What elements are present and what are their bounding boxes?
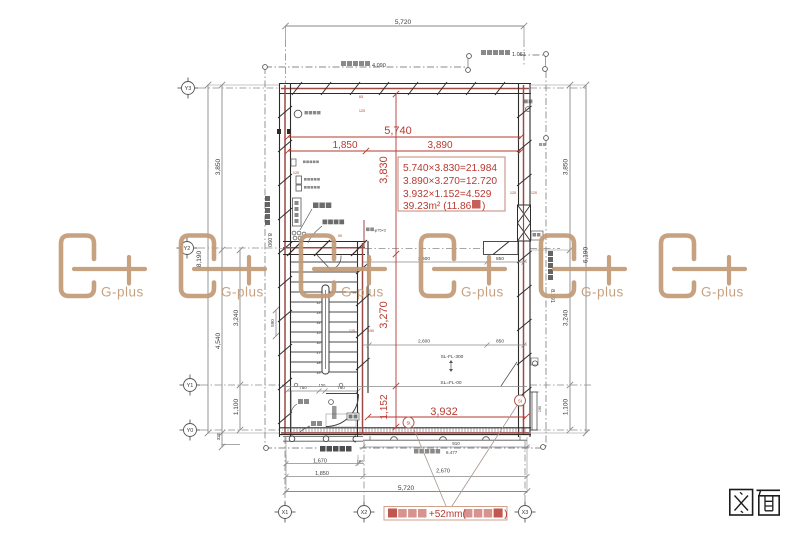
svg-text:19: 19 [316, 371, 320, 375]
svg-text:1,152: 1,152 [379, 394, 390, 419]
svg-text:8.090: 8.090 [266, 233, 272, 247]
svg-text:190: 190 [538, 406, 542, 412]
svg-text:14: 14 [316, 321, 320, 325]
svg-text:Y0: Y0 [187, 428, 194, 434]
svg-text:SL-FL-300: SL-FL-300 [441, 354, 464, 360]
svg-text:320: 320 [216, 432, 221, 440]
svg-text:+52mm(: +52mm( [429, 509, 467, 520]
svg-text:3,830: 3,830 [378, 156, 390, 184]
svg-text:SL=FL-00: SL=FL-00 [440, 380, 462, 386]
svg-text:190: 190 [368, 329, 374, 333]
svg-text:X1: X1 [282, 510, 289, 516]
svg-text:G-plus: G-plus [701, 285, 744, 300]
svg-text:6.477: 6.477 [446, 450, 458, 455]
svg-text:5,740: 5,740 [384, 125, 412, 137]
svg-text:1,100: 1,100 [563, 398, 570, 415]
svg-text:16: 16 [316, 341, 320, 345]
svg-text:590: 590 [270, 319, 275, 327]
svg-text:1,670: 1,670 [313, 458, 327, 464]
svg-text:Y2: Y2 [184, 246, 191, 252]
svg-text:3,932: 3,932 [430, 406, 458, 418]
svg-text:17: 17 [316, 351, 320, 355]
svg-text:X2: X2 [361, 510, 368, 516]
svg-text:8,190: 8,190 [196, 250, 203, 267]
svg-text:15: 15 [316, 331, 320, 335]
svg-text:5.740×3.830=21.984: 5.740×3.830=21.984 [403, 163, 497, 174]
svg-text:Y3: Y3 [185, 86, 192, 92]
svg-text:5,720: 5,720 [395, 19, 412, 26]
svg-text:3.890×3.270=12.720: 3.890×3.270=12.720 [403, 176, 497, 187]
svg-text:910: 910 [452, 441, 460, 446]
svg-text:2,670: 2,670 [436, 469, 450, 475]
svg-text:120: 120 [349, 329, 355, 333]
svg-text:4.090: 4.090 [372, 63, 386, 69]
svg-text:G-plus: G-plus [221, 285, 264, 300]
svg-text:120: 120 [510, 191, 516, 195]
svg-text:G-plus: G-plus [341, 285, 384, 300]
svg-text:6,190: 6,190 [583, 246, 590, 263]
svg-text:G-plus: G-plus [101, 285, 144, 300]
svg-text:1,850: 1,850 [332, 140, 357, 151]
svg-text:φ75×2: φ75×2 [375, 228, 387, 233]
svg-text:3,850: 3,850 [563, 158, 570, 175]
svg-text:3,240: 3,240 [563, 309, 570, 326]
svg-text:13: 13 [316, 311, 320, 315]
svg-text:): ) [504, 509, 507, 520]
svg-text:1,100: 1,100 [233, 398, 240, 415]
svg-text:120: 120 [293, 171, 299, 175]
svg-text:850: 850 [496, 256, 504, 262]
svg-text:G-plus: G-plus [581, 285, 624, 300]
svg-text:3,240: 3,240 [233, 309, 240, 326]
svg-text:120: 120 [531, 191, 537, 195]
svg-text:3.932×1.152=4.529: 3.932×1.152=4.529 [403, 189, 492, 200]
svg-text:G-plus: G-plus [461, 285, 504, 300]
svg-text:12: 12 [316, 301, 320, 305]
svg-text:90: 90 [338, 234, 342, 238]
svg-text:850: 850 [496, 339, 504, 345]
svg-text:5,720: 5,720 [398, 485, 415, 492]
svg-text:120: 120 [359, 109, 365, 113]
svg-text:): ) [482, 201, 485, 212]
svg-text:4,540: 4,540 [215, 332, 222, 349]
svg-text:18: 18 [316, 361, 320, 365]
svg-text:3,850: 3,850 [215, 158, 222, 175]
svg-text:2,600: 2,600 [418, 339, 430, 345]
svg-text:750: 750 [299, 385, 307, 390]
svg-text:X3: X3 [522, 510, 529, 516]
svg-text:Y1: Y1 [187, 383, 194, 389]
svg-text:3,890: 3,890 [427, 140, 452, 151]
svg-text:760: 760 [337, 385, 345, 390]
svg-text:65: 65 [359, 95, 363, 99]
svg-text:1,850: 1,850 [315, 471, 329, 477]
svg-text:3,270: 3,270 [378, 301, 390, 329]
svg-text:39.23m² (11.86: 39.23m² (11.86 [403, 201, 472, 212]
